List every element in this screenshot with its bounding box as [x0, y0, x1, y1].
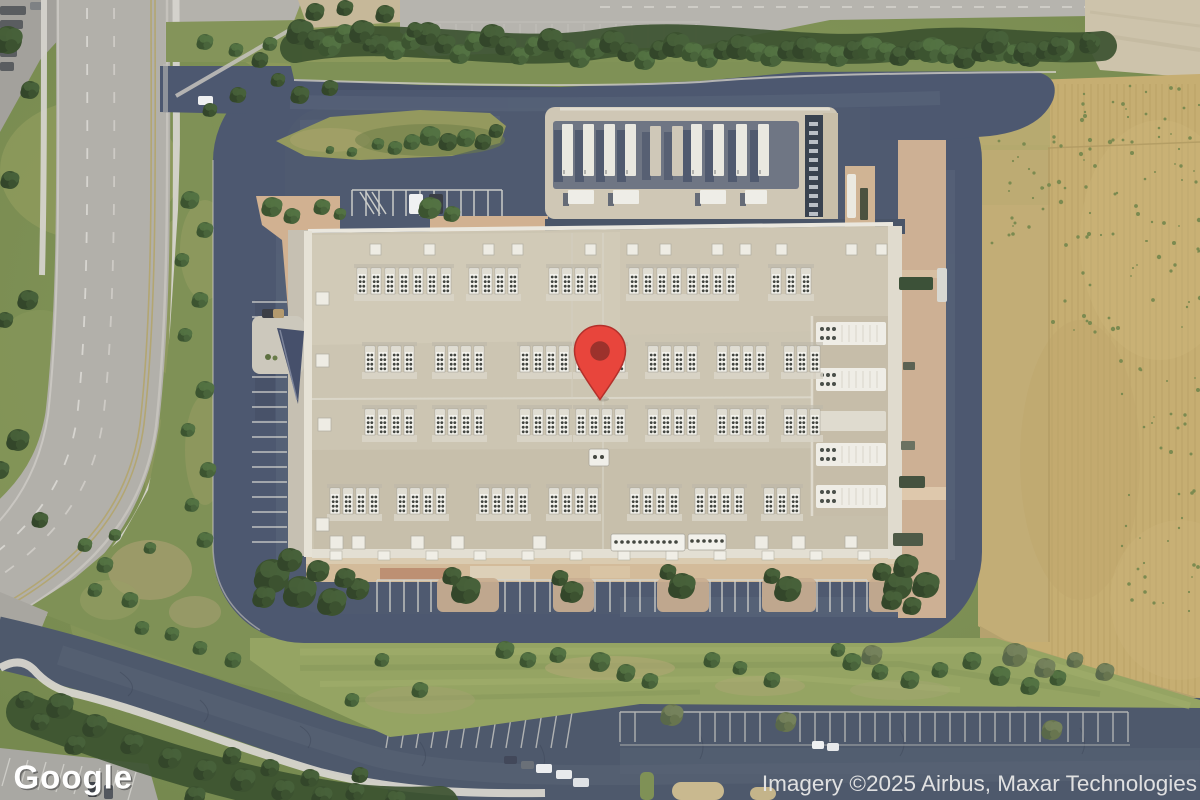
svg-text:Imagery ©2025 Airbus, Maxar Te: Imagery ©2025 Airbus, Maxar Technologies — [762, 771, 1197, 796]
svg-text:Google: Google — [14, 759, 134, 796]
